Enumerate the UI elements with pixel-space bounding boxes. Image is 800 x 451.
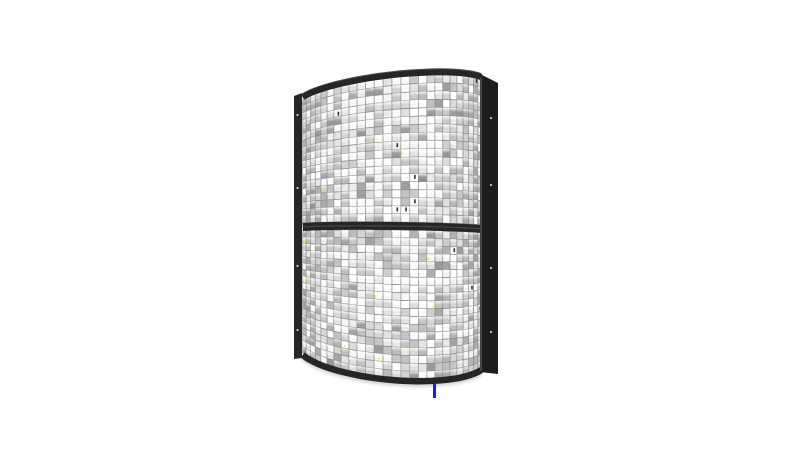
rivet-dot — [490, 331, 492, 333]
rivet-dot — [296, 187, 298, 189]
rivet-dot — [296, 329, 298, 331]
curved-tile-panel-render — [0, 0, 800, 451]
blue-tick — [433, 384, 436, 398]
rivet-dot — [490, 267, 492, 269]
left-post — [294, 93, 302, 359]
rivet-dot — [296, 114, 298, 116]
rivet-dot — [490, 184, 492, 186]
right-post — [480, 74, 498, 374]
rivet-dot — [490, 117, 492, 119]
rivet-dot — [296, 265, 298, 267]
render-viewport — [0, 0, 800, 451]
marks — [433, 384, 436, 398]
